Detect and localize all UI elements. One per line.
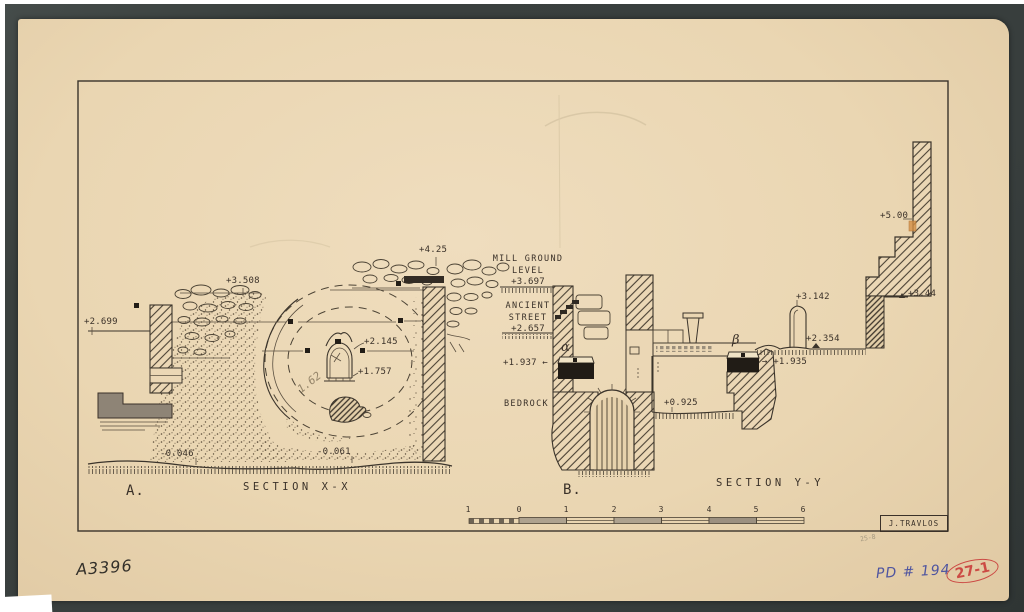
beta-label: β xyxy=(732,333,740,348)
water-channel xyxy=(653,313,756,356)
level-1935: → +1.935 xyxy=(762,357,807,367)
level-1937: +1.937 ← xyxy=(503,358,548,368)
mill-ground-label-2: LEVEL xyxy=(490,266,566,276)
level-425: +4.25 xyxy=(419,245,447,255)
level-2699: +2.699 xyxy=(84,317,118,327)
ancient-street-label-1: ANCIENT xyxy=(492,301,564,311)
level-1757: +1.757 xyxy=(358,367,392,377)
level-344: +3.44 xyxy=(908,289,936,299)
level-500: +5.00 xyxy=(880,211,908,221)
alpha-block xyxy=(558,357,594,379)
section-xx-art xyxy=(88,257,509,474)
scale-tick-4: 4 xyxy=(704,505,714,514)
level-3508: +3.508 xyxy=(226,276,260,286)
beta-block xyxy=(727,352,759,372)
scale-tick-2: 2 xyxy=(609,505,619,514)
section-b-title: SECTION Y-Y xyxy=(716,477,824,489)
scale-bar-art xyxy=(469,518,804,524)
alpha-label: α xyxy=(561,340,570,355)
stele xyxy=(790,300,806,348)
level-3697: +3.697 xyxy=(490,277,566,287)
scale-tick-1: 1 xyxy=(561,505,571,514)
scale-tick-6: 6 xyxy=(798,505,808,514)
section-yy-art xyxy=(500,142,931,477)
scanned-section-drawing: +2.699 +3.508 +4.25 +2.145 +1.757 1.62 -… xyxy=(0,0,1024,612)
ancient-street-label-2: STREET xyxy=(492,313,564,323)
level-m0046: -0.046 xyxy=(160,449,194,459)
level-0925: +0.925 xyxy=(664,398,698,408)
section-b-letter: B. xyxy=(563,482,582,498)
level-3142: +3.142 xyxy=(796,292,830,302)
scale-tick-5: 5 xyxy=(751,505,761,514)
scale-tick-1left: 1 xyxy=(463,505,473,514)
scale-tick-0: 0 xyxy=(514,505,524,514)
section-a-title: SECTION X-X xyxy=(243,481,351,493)
level-2657: +2.657 xyxy=(492,324,564,334)
level-m0061: -0.061 xyxy=(317,447,351,457)
scale-tick-3: 3 xyxy=(656,505,666,514)
level-2354: +2.354 xyxy=(806,334,840,344)
signature-box: J.TRAVLOS xyxy=(880,515,948,532)
inventory-number: A3396 xyxy=(75,556,133,579)
section-a-letter: A. xyxy=(126,483,145,499)
level-2145: +2.145 xyxy=(364,337,398,347)
bedrock-label: BEDROCK xyxy=(504,399,549,409)
pencil-smudges xyxy=(250,95,646,248)
mill-ground-label-1: MILL GROUND xyxy=(490,254,566,264)
staircase xyxy=(866,142,931,348)
